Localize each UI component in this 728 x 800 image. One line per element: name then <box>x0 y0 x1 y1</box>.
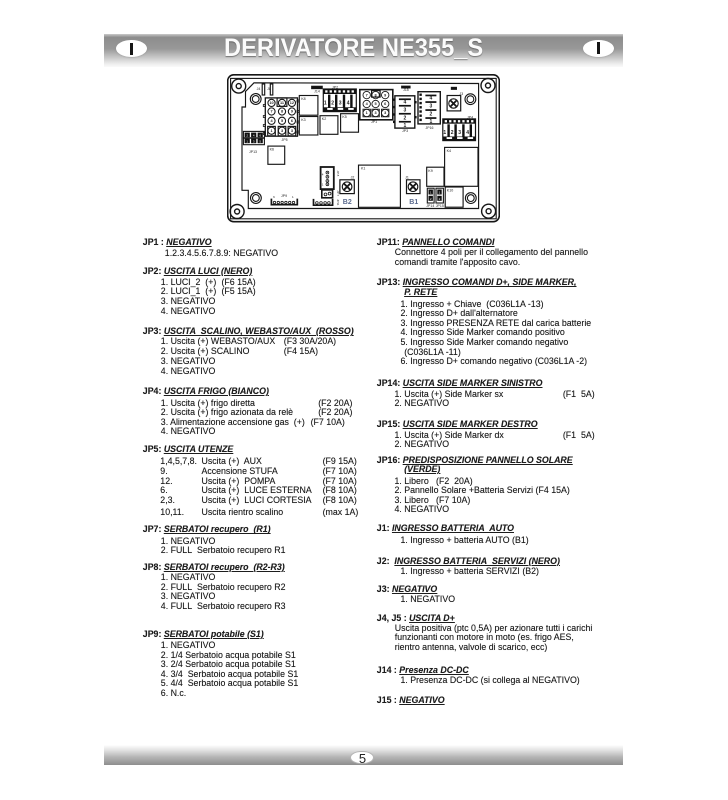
svg-text:JP11: JP11 <box>336 199 340 206</box>
svg-text:7: 7 <box>270 110 272 114</box>
svg-text:6: 6 <box>273 195 275 199</box>
svg-text:2: 2 <box>451 130 454 136</box>
svg-text:5: 5 <box>281 119 283 123</box>
svg-text:1: 1 <box>292 195 294 199</box>
svg-text:K6: K6 <box>270 148 274 152</box>
svg-text:1: 1 <box>324 101 327 107</box>
svg-text:K4: K4 <box>447 149 451 153</box>
svg-text:5: 5 <box>375 102 377 106</box>
svg-text:1: 1 <box>430 119 433 125</box>
svg-text:B2: B2 <box>343 199 352 206</box>
svg-text:1: 1 <box>443 130 446 136</box>
svg-text:3: 3 <box>384 111 386 115</box>
svg-text:K9: K9 <box>428 169 432 173</box>
svg-text:JP5: JP5 <box>281 138 287 142</box>
svg-text:B1: B1 <box>409 199 418 206</box>
svg-text:4: 4 <box>430 96 433 102</box>
svg-text:J1: J1 <box>405 176 409 180</box>
svg-text:K8: K8 <box>301 97 305 101</box>
svg-text:J2: J2 <box>351 176 355 180</box>
svg-text:J8: J8 <box>267 87 271 91</box>
svg-text:4: 4 <box>466 130 469 136</box>
svg-text:3: 3 <box>430 104 433 110</box>
svg-text:6: 6 <box>384 102 386 106</box>
svg-text:10: 10 <box>269 101 273 105</box>
svg-text:K1: K1 <box>361 167 365 171</box>
svg-text:2: 2 <box>331 101 334 107</box>
svg-text:JP15: JP15 <box>436 204 444 208</box>
svg-text:2: 2 <box>404 116 407 122</box>
svg-text:JP 8: JP 8 <box>336 171 340 177</box>
svg-text:3: 3 <box>281 129 283 133</box>
svg-text:8: 8 <box>281 110 283 114</box>
svg-text:K2: K2 <box>322 117 326 121</box>
svg-text:J15: J15 <box>403 88 409 92</box>
svg-text:3: 3 <box>375 111 377 115</box>
svg-text:11: 11 <box>280 101 284 105</box>
svg-text:6: 6 <box>291 119 293 123</box>
svg-text:1: 1 <box>322 182 324 186</box>
svg-text:1: 1 <box>270 129 272 133</box>
svg-text:8: 8 <box>375 93 377 97</box>
svg-text:JP9: JP9 <box>281 194 287 198</box>
svg-text:K10: K10 <box>447 189 453 193</box>
svg-text:JP4: JP4 <box>467 115 473 119</box>
svg-text:3: 3 <box>339 101 342 107</box>
svg-text:4: 4 <box>404 100 407 106</box>
svg-text:7: 7 <box>366 93 368 97</box>
svg-text:J4: J4 <box>257 87 261 91</box>
svg-text:JP14: JP14 <box>426 204 434 208</box>
svg-text:JP13: JP13 <box>249 150 257 154</box>
svg-text:K3: K3 <box>301 118 305 122</box>
svg-text:2: 2 <box>430 112 433 118</box>
svg-text:3: 3 <box>458 130 461 136</box>
svg-text:J3: J3 <box>459 92 463 96</box>
svg-text:3: 3 <box>404 108 407 114</box>
svg-text:JP 7: JP 7 <box>336 190 340 196</box>
svg-text:JP3: JP3 <box>402 129 408 133</box>
svg-text:JP16: JP16 <box>426 126 434 130</box>
svg-text:JP2: JP2 <box>332 85 338 89</box>
svg-text:3: 3 <box>291 129 293 133</box>
svg-text:4: 4 <box>347 101 350 107</box>
svg-text:9: 9 <box>291 110 293 114</box>
svg-text:4: 4 <box>366 102 369 106</box>
svg-text:K5: K5 <box>342 115 346 119</box>
svg-text:J14: J14 <box>314 89 320 93</box>
svg-text:4: 4 <box>270 119 273 123</box>
svg-text:12: 12 <box>290 101 294 105</box>
svg-text:JP1: JP1 <box>371 120 377 124</box>
svg-text:4: 4 <box>322 172 324 176</box>
svg-text:1: 1 <box>366 111 368 115</box>
svg-text:9: 9 <box>384 93 386 97</box>
